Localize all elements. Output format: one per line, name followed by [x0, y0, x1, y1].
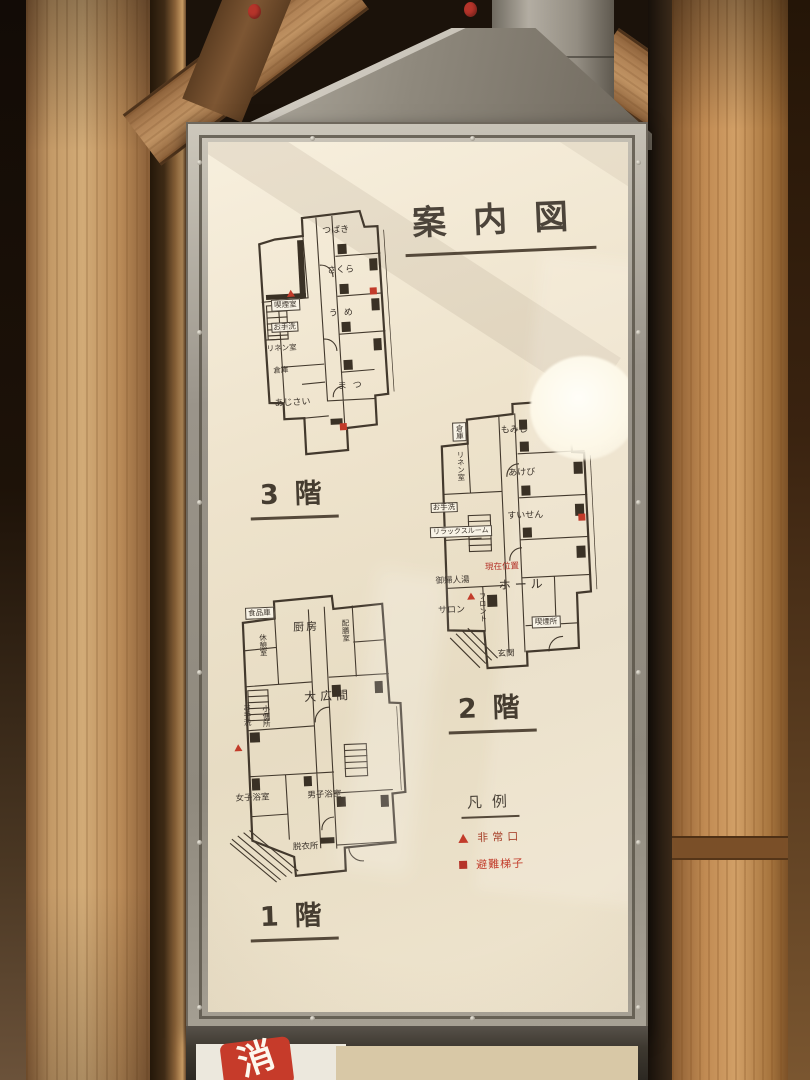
- room-label-tag: 喫煙室: [271, 298, 300, 311]
- extinguisher-character: 消: [233, 1035, 280, 1080]
- room-label: 配膳室: [341, 619, 350, 642]
- guide-sign-lightbox: 案内図: [186, 122, 648, 1032]
- square-marker-icon: [459, 861, 467, 869]
- page-title: 案内図: [403, 188, 596, 245]
- triangle-marker-icon: [458, 833, 468, 842]
- room-label: うめ: [329, 308, 359, 319]
- room-label: リネン室: [267, 344, 297, 353]
- room-label: サロン: [438, 606, 465, 616]
- floor-label-2f: 2階: [447, 684, 536, 734]
- photo-scene: 案内図: [0, 0, 810, 1080]
- room-label: 脱衣所: [293, 842, 319, 852]
- room-label: あじさい: [274, 398, 310, 409]
- screw-rivet: [197, 330, 202, 335]
- room-label: 玄関: [497, 650, 514, 660]
- legend-item-ladder: 避難梯子: [459, 853, 583, 873]
- below-sign-area: 消: [186, 1026, 648, 1080]
- screw-rivet: [636, 670, 641, 675]
- screw-rivet: [636, 840, 641, 845]
- red-sticker-icon: [464, 2, 477, 17]
- floorplan-3f: つばき さくら うめ 喫煙室 お手洗 リネン室 倉庫 あじさい まつ: [237, 201, 412, 467]
- room-label: リネン室: [456, 451, 465, 481]
- room-label: お手洗: [242, 703, 251, 726]
- screw-rivet: [310, 136, 315, 141]
- screw-rivet: [197, 670, 202, 675]
- room-label: さくら: [327, 266, 354, 277]
- screw-rivet: [197, 840, 202, 845]
- screw-rivet: [197, 160, 202, 165]
- room-label: 倉庫: [273, 366, 288, 375]
- room-label: つばき: [322, 226, 349, 237]
- room-label-tag: リラックスルーム: [430, 525, 492, 538]
- wood-gap-left: [150, 0, 186, 1080]
- dark-left-edge: [0, 0, 26, 1080]
- floor-label-1f: 1階: [249, 892, 338, 942]
- screw-rivet: [636, 500, 641, 505]
- legend-label: 避難梯子: [476, 855, 525, 873]
- room-label: ホール: [498, 578, 546, 592]
- screw-rivet: [197, 500, 202, 505]
- room-label-tag: 食品庫: [245, 607, 274, 620]
- wood-post-right: [672, 0, 788, 1080]
- wood-seam-right: [672, 836, 788, 860]
- room-label: もみじ: [501, 426, 528, 436]
- room-label: あけび: [508, 469, 535, 479]
- paper-lantern-reflection: [530, 356, 628, 460]
- floor-label-3f: 3階: [249, 470, 338, 520]
- wood-post-left: [26, 0, 150, 1080]
- room-label: 女子浴室: [235, 793, 269, 803]
- room-label: すいせん: [507, 511, 543, 522]
- room-label: お手洗: [271, 321, 298, 332]
- floorplan-3f-drawing: [237, 201, 412, 467]
- screw-rivet: [310, 1016, 315, 1021]
- room-label: お手洗: [431, 502, 458, 513]
- room-label: 厨房: [293, 621, 319, 634]
- room-label: 小便所: [262, 705, 271, 728]
- legend-label: 非常口: [477, 828, 523, 846]
- legend: 凡例 非常口 避難梯子: [451, 788, 584, 873]
- dark-right-edge: [788, 0, 810, 1080]
- floorplan-1f: 食品庫 休憩室 厨房 配膳室 大広間 お手洗 小便所 女子浴室 男子浴室 脱衣所: [212, 584, 412, 894]
- room-label: 御婦人湯: [435, 576, 469, 586]
- screw-rivet: [636, 160, 641, 165]
- legend-title: 凡例: [461, 790, 520, 819]
- room-label: 休憩室: [258, 634, 267, 657]
- legend-item-exit: 非常口: [458, 826, 582, 846]
- room-label-tag: 喫煙所: [532, 616, 561, 629]
- screw-rivet: [470, 136, 475, 141]
- red-sticker-icon: [248, 4, 261, 19]
- screw-rivet: [197, 1005, 202, 1010]
- room-label: フロント: [478, 592, 487, 622]
- sign-panel: 案内図: [208, 142, 628, 1012]
- room-label: 男子浴室: [307, 790, 341, 800]
- you-are-here-label: 現在位置: [485, 562, 519, 572]
- title-text: 案内図: [403, 196, 596, 257]
- beige-wall: [336, 1046, 638, 1080]
- room-label: まつ: [338, 381, 368, 392]
- fire-extinguisher-sign: 消: [219, 1036, 294, 1080]
- screw-rivet: [470, 1016, 475, 1021]
- room-label: 倉庫: [452, 422, 467, 441]
- shadow-right: [648, 0, 672, 1080]
- screw-rivet: [636, 1005, 641, 1010]
- screw-rivet: [636, 330, 641, 335]
- room-label: 大広間: [304, 689, 353, 704]
